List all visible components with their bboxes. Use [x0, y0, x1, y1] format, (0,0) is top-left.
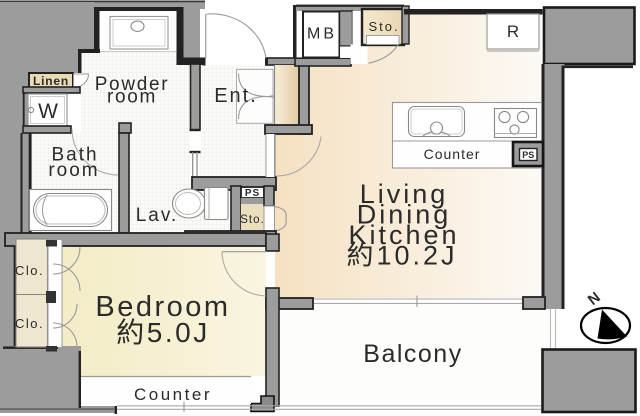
svg-text:PS: PS [245, 188, 260, 199]
svg-text:約5.0J: 約5.0J [116, 317, 209, 348]
svg-text:Clo.: Clo. [15, 263, 44, 278]
svg-text:PS: PS [522, 150, 534, 160]
svg-text:W: W [38, 100, 58, 123]
svg-text:Lav.: Lav. [136, 205, 179, 226]
svg-text:MB: MB [307, 26, 337, 43]
svg-text:Sto.: Sto. [368, 19, 399, 34]
svg-text:R: R [507, 22, 519, 41]
svg-text:Balcony: Balcony [363, 340, 462, 368]
svg-text:Counter: Counter [134, 385, 212, 404]
svg-text:Sto.: Sto. [240, 214, 264, 226]
svg-text:Counter: Counter [424, 146, 481, 162]
svg-text:Linen: Linen [33, 74, 69, 88]
svg-text:Clo.: Clo. [15, 316, 44, 331]
svg-text:room: room [48, 160, 99, 181]
svg-text:Ent.: Ent. [214, 85, 258, 107]
svg-text:room: room [107, 87, 157, 108]
svg-text:約10.2J: 約10.2J [346, 241, 457, 271]
